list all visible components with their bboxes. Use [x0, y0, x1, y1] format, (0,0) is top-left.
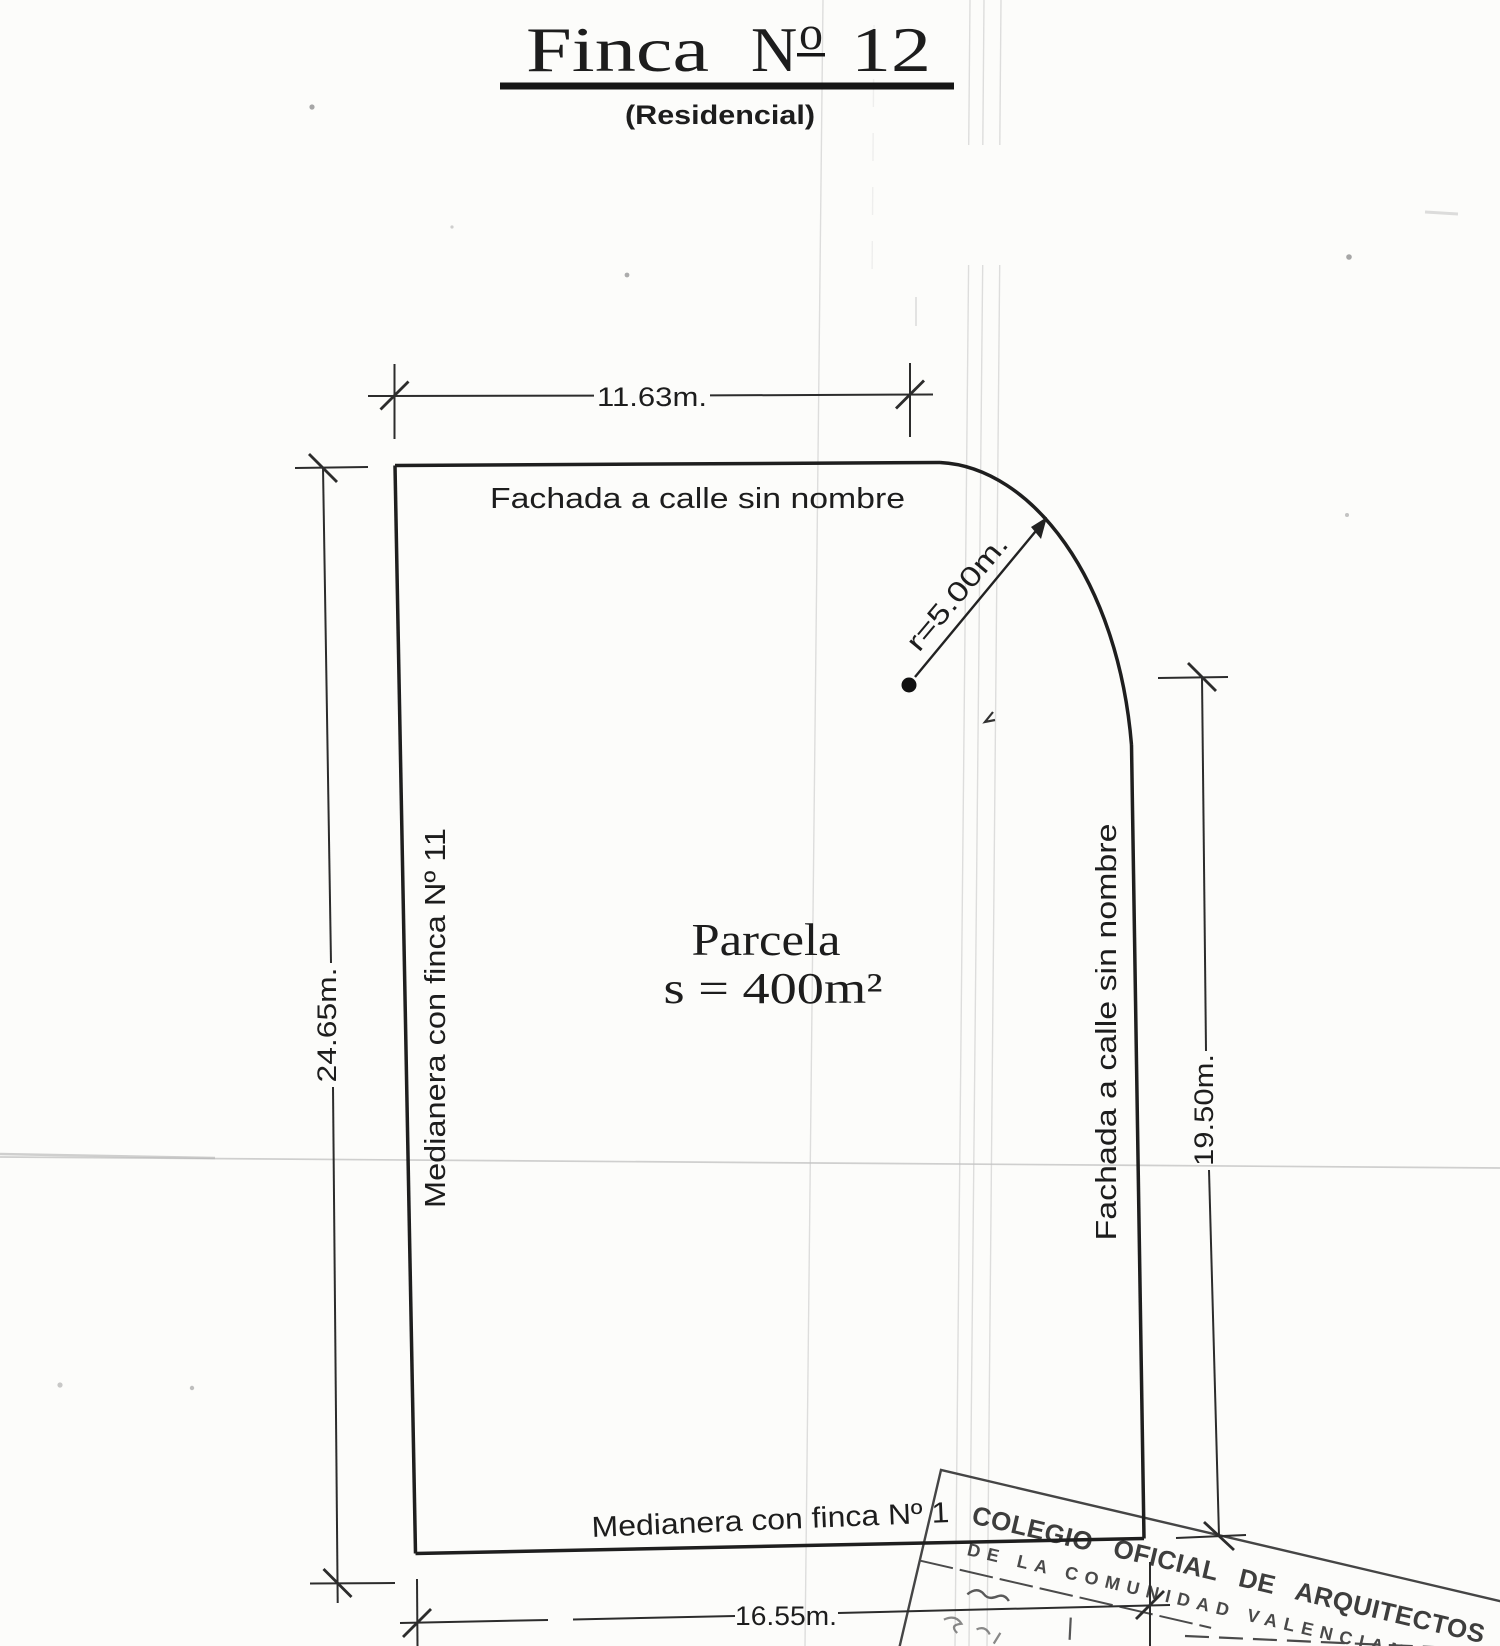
svg-text:Fachada a calle sin nombre: Fachada a calle sin nombre — [490, 483, 905, 515]
svg-text:19.50m.: 19.50m. — [1189, 1054, 1219, 1166]
svg-text:24.65m.: 24.65m. — [312, 968, 342, 1083]
svg-text:o: o — [799, 7, 823, 60]
svg-text:Finca: Finca — [526, 14, 709, 85]
svg-text:s = 400m²: s = 400m² — [664, 964, 883, 1013]
svg-text:11.63m.: 11.63m. — [597, 382, 707, 412]
svg-text:16.55m.: 16.55m. — [735, 1601, 837, 1631]
svg-text:Medianera con finca Nº 11: Medianera con finca Nº 11 — [420, 828, 452, 1208]
svg-text:(Residencial): (Residencial) — [625, 100, 815, 130]
svg-text:Parcela: Parcela — [692, 914, 841, 965]
svg-text:12: 12 — [851, 14, 931, 85]
svg-text:N: N — [751, 14, 797, 85]
svg-text:Fachada a calle sin nombre: Fachada a calle sin nombre — [1091, 824, 1123, 1241]
svg-text:Medianera con finca Nº 1: Medianera con finca Nº 1 — [591, 1497, 950, 1544]
